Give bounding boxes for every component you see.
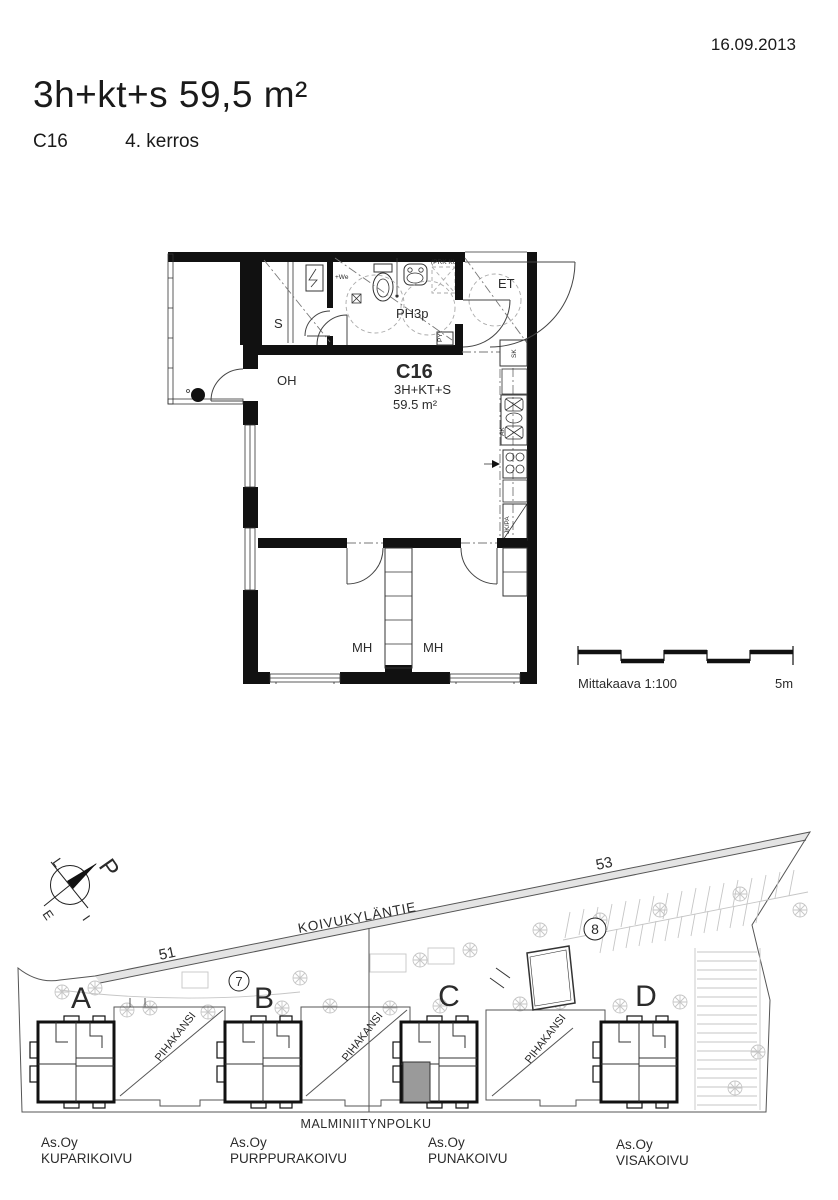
path-name: MALMINIITYNPOLKU bbox=[301, 1117, 432, 1131]
fridge-label: JK/PA bbox=[504, 516, 511, 534]
compass-south: E bbox=[40, 907, 57, 923]
unit-id-label: C16 bbox=[396, 361, 433, 383]
shower-label: +We bbox=[335, 274, 349, 281]
room-label-living: OH bbox=[277, 373, 297, 388]
svg-text:8: 8 bbox=[591, 921, 599, 937]
svg-text:KUPARIKOIVU: KUPARIKOIVU bbox=[41, 1151, 132, 1166]
unit-id: C16 bbox=[33, 131, 68, 152]
laundry-label: PY bbox=[437, 333, 444, 342]
compass: P L E I bbox=[40, 854, 125, 924]
svg-text:As.Oy: As.Oy bbox=[428, 1135, 465, 1150]
building-letter-d: D bbox=[635, 980, 657, 1013]
scale-max-label: 5m bbox=[775, 676, 793, 691]
compass-needle-icon bbox=[67, 863, 97, 889]
plot-number-53: 53 bbox=[594, 854, 614, 874]
svg-text:VISAKOIVU: VISAKOIVU bbox=[616, 1153, 689, 1168]
compass-north: P bbox=[93, 854, 124, 883]
bedroom-walls bbox=[258, 538, 527, 674]
svg-text:7: 7 bbox=[235, 974, 242, 989]
deck-label-3: PIHAKANSI bbox=[523, 1012, 569, 1066]
wardrobes bbox=[385, 548, 527, 668]
room-label-entry: ET bbox=[498, 276, 515, 291]
room-label-bedroom2: MH bbox=[423, 640, 443, 655]
building-b bbox=[217, 1016, 301, 1108]
building-number-7: 7 bbox=[229, 971, 249, 991]
svg-text:As.Oy: As.Oy bbox=[616, 1137, 653, 1152]
site-plan: PIHAKANSI PIHAKANSI PIHAKANSI A B C D 7 bbox=[0, 820, 838, 1200]
deck-label-2: PIHAKANSI bbox=[340, 1010, 386, 1064]
exterior-walls bbox=[168, 252, 537, 684]
page: 16.09.2013 3h+kt+s 59,5 m² C16 4. kerros bbox=[0, 0, 838, 1200]
company-label-a: As.Oy KUPARIKOIVU bbox=[41, 1135, 132, 1166]
compass-east: I bbox=[80, 913, 93, 924]
scale-label: Mittakaava 1:100 bbox=[578, 676, 677, 691]
company-label-c: As.Oy PUNAKOIVU bbox=[428, 1135, 508, 1166]
svg-text:PURPPURAKOIVU: PURPPURAKOIVU bbox=[230, 1151, 347, 1166]
balcony bbox=[168, 254, 243, 404]
deck-label-1: PIHAKANSI bbox=[153, 1010, 199, 1064]
svg-text:As.Oy: As.Oy bbox=[230, 1135, 267, 1150]
company-label-b: As.Oy PURPPURAKOIVU bbox=[230, 1135, 347, 1166]
windows bbox=[243, 425, 520, 684]
floor-label: 4. kerros bbox=[125, 131, 199, 152]
highlighted-apartment bbox=[403, 1062, 430, 1102]
building-d bbox=[593, 1016, 677, 1108]
svg-text:As.Oy: As.Oy bbox=[41, 1135, 78, 1150]
sauna bbox=[256, 252, 460, 355]
section-arrow-icon bbox=[492, 460, 500, 468]
unit-area-label: 59.5 m² bbox=[393, 397, 438, 412]
dishwasher-label: AK bbox=[499, 427, 506, 436]
deck-c-d bbox=[486, 946, 605, 1106]
building-letter-b: B bbox=[254, 982, 274, 1015]
cleaning-closet-label: SK bbox=[511, 349, 518, 358]
document-date: 16.09.2013 bbox=[711, 35, 796, 55]
building-a bbox=[30, 1016, 114, 1108]
apartment-subtitle: C16 4. kerros bbox=[33, 131, 199, 153]
unit-type-label: 3H+KT+S bbox=[394, 382, 451, 397]
scale-bar bbox=[578, 646, 793, 665]
company-label-d: As.Oy VISAKOIVU bbox=[616, 1137, 689, 1168]
building-number-8: 8 bbox=[584, 918, 606, 940]
plot-number-51: 51 bbox=[157, 944, 177, 964]
svg-text:PUNAKOIVU: PUNAKOIVU bbox=[428, 1151, 508, 1166]
building-letter-a: A bbox=[71, 982, 91, 1015]
room-label-sauna: S bbox=[274, 316, 283, 331]
bathroom bbox=[317, 258, 455, 345]
room-label-bedroom1: MH bbox=[352, 640, 372, 655]
kitchen bbox=[484, 340, 527, 540]
floor-plan: S +We (PRK KU) PH3p PY bbox=[0, 238, 838, 713]
room-label-bathroom: PH3p bbox=[396, 306, 429, 321]
washbasin-icon bbox=[404, 264, 427, 285]
apartment-title: 3h+kt+s 59,5 m² bbox=[33, 74, 308, 116]
compass-west: L bbox=[50, 855, 66, 870]
floor-drain bbox=[191, 388, 205, 402]
building-letter-c: C bbox=[438, 980, 460, 1013]
sauna-heater-icon bbox=[309, 269, 317, 287]
stove-icon bbox=[503, 450, 527, 478]
